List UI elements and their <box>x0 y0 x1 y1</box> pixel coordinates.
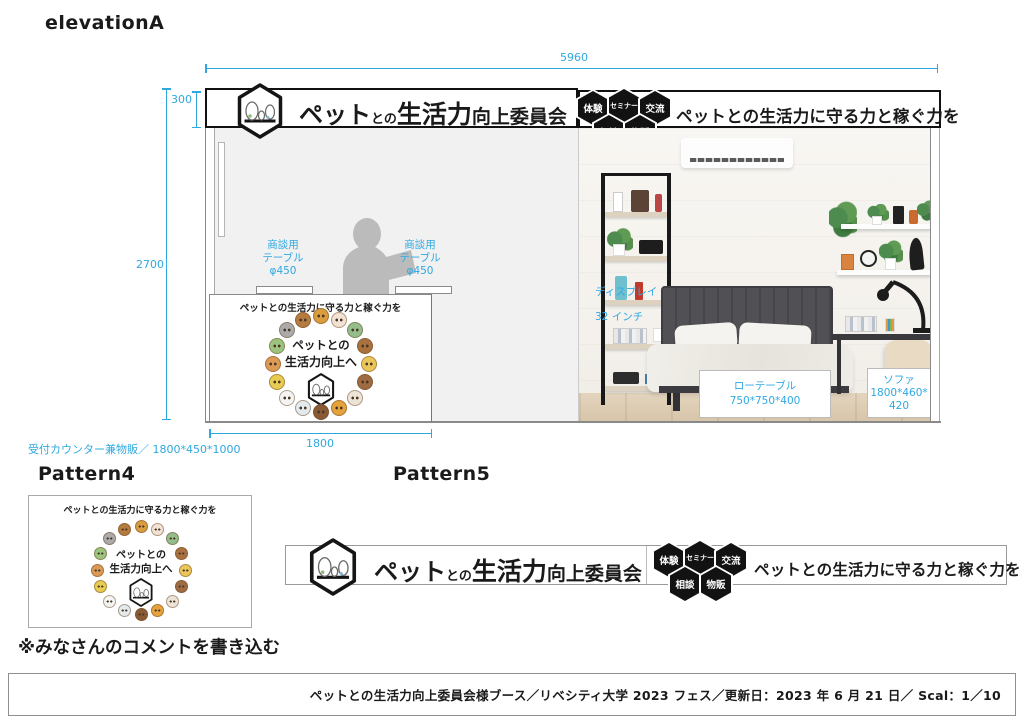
banner-title: ペットとの生活力向上委員会 <box>299 95 567 131</box>
banner-title-part3: 生活力 <box>397 95 472 131</box>
animal-face <box>347 322 363 338</box>
badge-cluster: 体験 セミナー 交流 相談 物販 <box>652 539 750 597</box>
ring-text-line2: 生活力向上へ <box>285 353 357 370</box>
pet-logo-hexagon-icon <box>306 373 336 406</box>
pattern5-divider <box>646 546 647 584</box>
clock <box>860 250 877 267</box>
low-table-label: ローテーブル 750*750*400 <box>699 370 831 418</box>
animal-face <box>295 400 311 416</box>
pattern5-title: Pattern5 <box>393 463 490 485</box>
animal-face <box>135 520 148 533</box>
animal-face <box>347 390 363 406</box>
banner-title-part2: との <box>371 108 397 127</box>
pet-logo-hexagon-icon <box>128 578 154 607</box>
air-conditioner <box>681 138 793 168</box>
animal-face <box>166 595 179 608</box>
animal-face <box>295 312 311 328</box>
dimension-line-counter <box>209 433 432 434</box>
animal-face <box>179 564 192 577</box>
animal-face <box>175 547 188 560</box>
animal-face <box>361 356 377 372</box>
dimension-counter-width: 1800 <box>306 437 334 450</box>
drawing-sheet: elevationA 5960 2700 300 ペットとの生活力向上委員会 体… <box>0 0 1024 724</box>
ring-text-line1: ペットとの <box>292 337 349 353</box>
banner-title-part1: ペット <box>299 95 371 130</box>
dimension-line-banner <box>196 91 197 128</box>
pattern4-title: Pattern4 <box>38 463 135 485</box>
meeting-table-2 <box>395 286 452 294</box>
pattern4-slogan: ペットとの生活力に守る力と稼ぐ力を <box>29 503 251 516</box>
table2-label: 商談用テーブルφ450 <box>385 239 455 278</box>
animal-face <box>313 404 329 420</box>
comment-note: ※みなさんのコメントを書き込む <box>18 634 280 659</box>
animal-face <box>103 595 116 608</box>
animal-face <box>118 604 131 617</box>
dimension-total-height: 2700 <box>136 258 164 271</box>
pattern4-panel: ペットとの生活力に守る力と稼ぐ力を ペットとの 生活力向上へ <box>28 495 252 628</box>
booth-banner-left: ペットとの生活力向上委員会 <box>205 88 578 128</box>
animal-face <box>279 390 295 406</box>
counter-note: 受付カウンター兼物販／ 1800*450*1000 <box>28 441 240 457</box>
dimension-banner-height: 300 <box>171 93 192 106</box>
pattern5-slogan: ペットとの生活力に守る力と稼ぐ力を <box>754 558 1021 580</box>
banner-title-part4: 向上委員会 <box>472 102 567 129</box>
animal-face <box>265 356 281 372</box>
pattern5-banner: ペットとの生活力向上委員会 体験 セミナー 交流 相談 物販 ペットとの生活力に… <box>285 545 1007 585</box>
interior-photo: ディスプレイ 32 インチ ローテーブル 750*750*400 ソファ 180… <box>578 128 930 421</box>
booth-right-wall <box>930 128 940 422</box>
pattern5-banner-title: ペットとの生活力向上委員会 <box>374 552 642 588</box>
banner-slogan: ペットとの生活力に守る力と稼ぐ力を <box>676 103 960 127</box>
animal-face <box>94 547 107 560</box>
title-block: ペットとの生活力向上委員会様ブース／リベシティ大学 2023 フェス／更新日：2… <box>8 673 1016 716</box>
desk-lamp <box>871 266 930 338</box>
display-label: ディスプレイ 32 インチ <box>595 286 671 324</box>
table1-label: 商談用テーブルφ450 <box>248 239 318 278</box>
reception-counter: ペットとの生活力に守る力と稼ぐ力を ペットとの 生活力向上へ <box>209 294 432 422</box>
dimension-total-width: 5960 <box>560 51 588 64</box>
pet-logo-hexagon-icon <box>306 538 360 596</box>
animal-face <box>357 338 373 354</box>
animal-face <box>269 338 285 354</box>
animal-face <box>91 564 104 577</box>
wall-panel-strip <box>218 142 225 237</box>
dimension-line-height <box>166 88 167 420</box>
animal-face <box>135 608 148 621</box>
animal-face <box>166 532 179 545</box>
pet-logo-hexagon-icon <box>234 83 286 139</box>
animal-face <box>313 308 329 324</box>
page-title: elevationA <box>45 12 164 34</box>
sofa-label: ソファ 1800*460* 420 <box>867 368 930 418</box>
animal-face <box>118 523 131 536</box>
wall-shelf-1 <box>841 224 930 229</box>
animal-ring: ペットとの 生活力向上へ <box>265 308 377 420</box>
dimension-line-width <box>205 68 938 69</box>
meeting-table-1 <box>256 286 313 294</box>
hanging-plant <box>829 200 857 244</box>
title-block-text: ペットとの生活力向上委員会様ブース／リベシティ大学 2023 フェス／更新日：2… <box>310 685 1001 704</box>
animal-ring: ペットとの 生活力向上へ <box>91 520 191 620</box>
booth-banner-right: 体験 セミナー 交流 相談 物販 ペットとの生活力に守る力と稼ぐ力を <box>578 90 941 128</box>
animal-face <box>331 312 347 328</box>
animal-face <box>269 374 285 390</box>
